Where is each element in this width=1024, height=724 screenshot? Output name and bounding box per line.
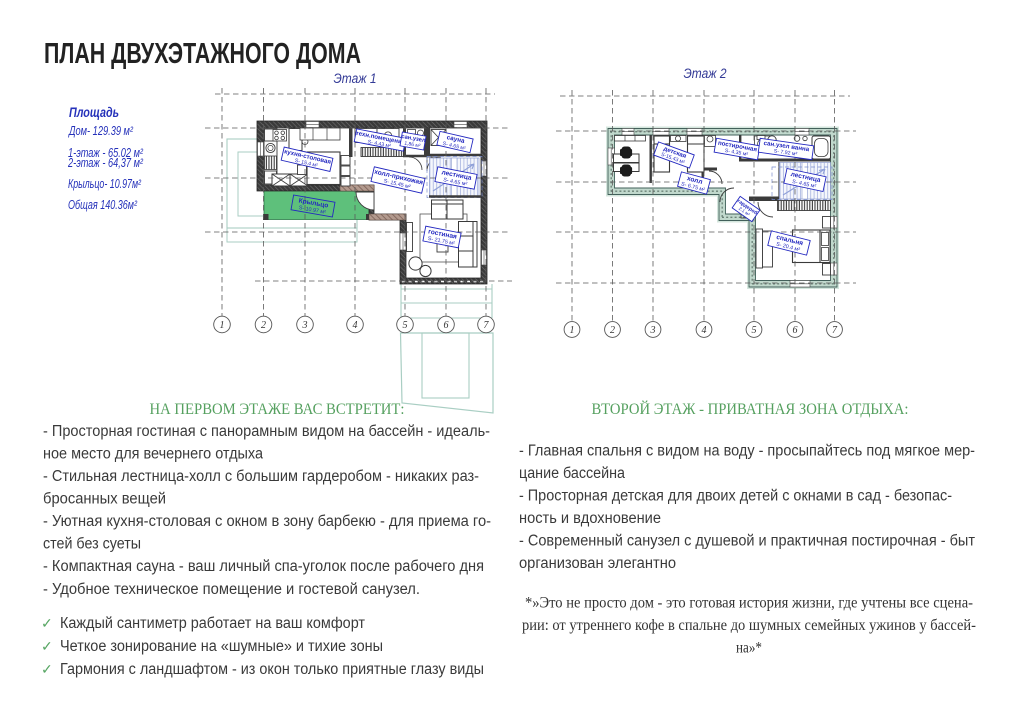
svg-text:Дом- 129.39 м²: Дом- 129.39 м² (68, 124, 134, 138)
svg-text:- Просторная детская для двоих: - Просторная детская для двоих детей с о… (519, 488, 952, 505)
svg-text:- Уютная кухня-столовая с окно: - Уютная кухня-столовая с окном в зону б… (43, 513, 491, 530)
svg-text:стей без суеты: стей без суеты (43, 536, 141, 553)
svg-text:на»*: на»* (736, 640, 762, 657)
svg-text:ное место для вечернего отдыха: ное место для вечернего отдыха (43, 446, 263, 463)
svg-text:6: 6 (444, 320, 449, 331)
svg-text:*»Это не просто дом - это гото: *»Это не просто дом - это готовая истори… (525, 595, 973, 612)
svg-text:1: 1 (570, 325, 575, 336)
svg-text:✓: ✓ (41, 661, 53, 677)
svg-text:5: 5 (403, 320, 408, 331)
svg-text:рии: от утреннего кофе в спаль: рии: от утреннего кофе в спальне до шумн… (522, 617, 976, 634)
svg-text:2: 2 (610, 325, 615, 336)
svg-text:3: 3 (650, 325, 656, 336)
svg-text:организован элегантно: организован элегантно (519, 555, 676, 572)
svg-text:Этаж 2: Этаж 2 (684, 66, 727, 81)
svg-text:- Стильная лестница-холл с бол: - Стильная лестница-холл с большим гарде… (43, 468, 479, 485)
svg-text:4: 4 (353, 320, 358, 331)
svg-text:3: 3 (302, 320, 308, 331)
svg-text:бросанных вещей: бросанных вещей (43, 491, 166, 508)
svg-text:2-этаж - 64,37 м²: 2-этаж - 64,37 м² (67, 156, 143, 170)
svg-text:Этаж 1: Этаж 1 (334, 71, 377, 86)
svg-text:Гармония с ландшафтом - из око: Гармония с ландшафтом - из окон только п… (60, 661, 484, 678)
svg-text:- Компактная сауна - ваш личны: - Компактная сауна - ваш личный спа-угол… (43, 558, 484, 575)
svg-text:2: 2 (261, 320, 266, 331)
svg-text:- Современный санузел с душево: - Современный санузел с душевой и практи… (519, 533, 975, 550)
svg-text:ВТОРОЙ ЭТАЖ - ПРИВАТНАЯ ЗОНА О: ВТОРОЙ ЭТАЖ - ПРИВАТНАЯ ЗОНА ОТДЫХА: (592, 399, 909, 418)
svg-text:Площадь: Площадь (69, 105, 119, 120)
svg-text:цание бассейна: цание бассейна (519, 465, 625, 482)
svg-text:- Просторная гостиная с панора: - Просторная гостиная с панорамным видом… (43, 423, 490, 440)
svg-text:- Главная спальня с видом на в: - Главная спальня с видом на воду - прос… (519, 443, 975, 460)
svg-text:✓: ✓ (41, 638, 53, 654)
svg-text:ность и вдохновение: ность и вдохновение (519, 510, 661, 527)
svg-text:ПЛАН ДВУХЭТАЖНОГО ДОМА: ПЛАН ДВУХЭТАЖНОГО ДОМА (44, 38, 361, 70)
svg-text:Каждый сантиметр работает на в: Каждый сантиметр работает на ваш комфорт (60, 615, 365, 632)
svg-text:6: 6 (793, 325, 798, 336)
svg-text:Крыльцо- 10.97м²: Крыльцо- 10.97м² (68, 177, 142, 191)
svg-text:✓: ✓ (41, 615, 53, 631)
svg-text:4: 4 (702, 325, 707, 336)
svg-text:НА ПЕРВОМ ЭТАЖЕ ВАС ВСТРЕТИТ:: НА ПЕРВОМ ЭТАЖЕ ВАС ВСТРЕТИТ: (150, 401, 405, 418)
svg-text:Общая 140.36м²: Общая 140.36м² (68, 198, 138, 212)
svg-text:- Удобное техническое помещени: - Удобное техническое помещение и гостев… (43, 581, 420, 598)
svg-text:Четкое зонирование на «шумные»: Четкое зонирование на «шумные» и тихие з… (60, 638, 383, 655)
svg-text:1: 1 (220, 320, 225, 331)
svg-text:5: 5 (752, 325, 757, 336)
